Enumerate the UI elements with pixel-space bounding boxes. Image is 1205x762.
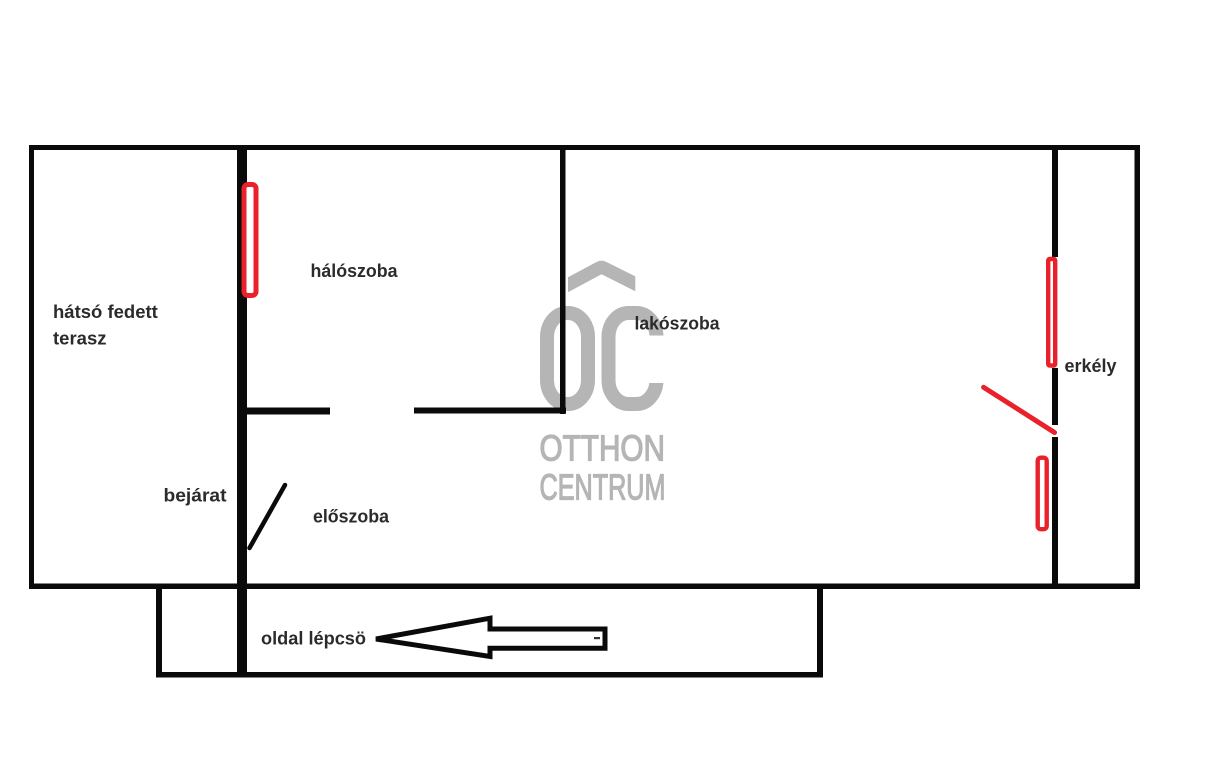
svg-text:hálószoba: hálószoba: [311, 260, 399, 281]
svg-text:erkély: erkély: [1065, 355, 1118, 376]
svg-text:CENTRUM: CENTRUM: [540, 467, 666, 508]
svg-text:hátsó fedett: hátsó fedett: [53, 301, 158, 322]
svg-text:bejárat: bejárat: [164, 485, 227, 506]
svg-text:OTTHON: OTTHON: [540, 428, 666, 469]
svg-text:oldal lépcsö: oldal lépcsö: [261, 628, 366, 649]
svg-text:előszoba: előszoba: [313, 506, 390, 527]
svg-text:terasz: terasz: [53, 328, 106, 349]
svg-text:lakószoba: lakószoba: [635, 313, 721, 334]
